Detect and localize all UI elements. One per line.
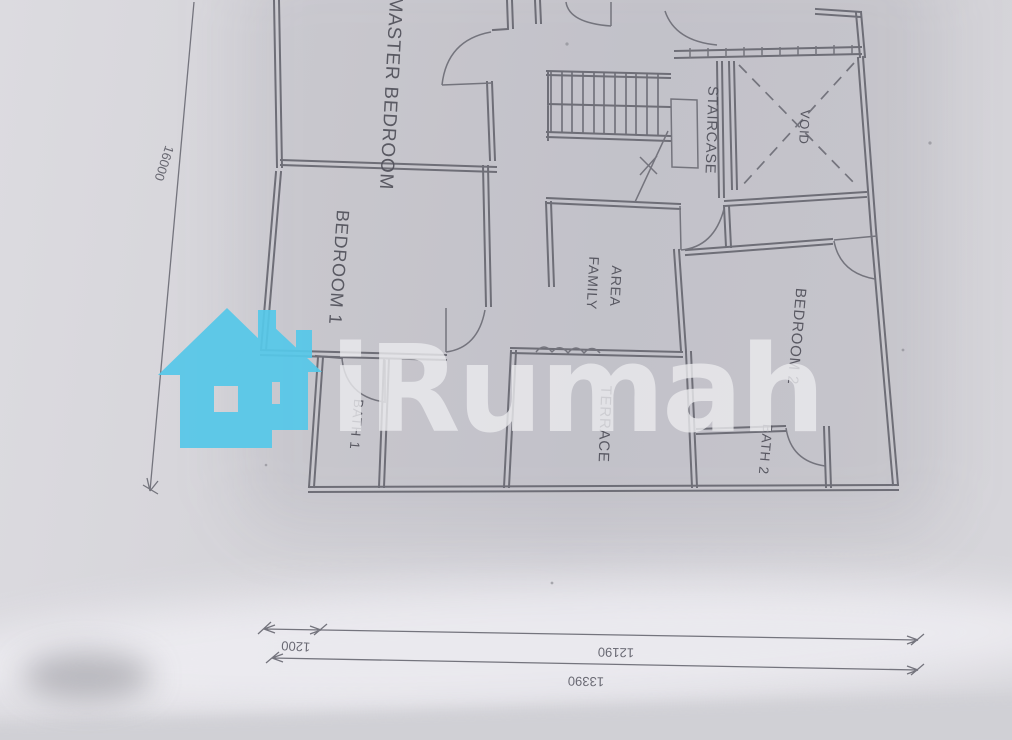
dimension-label-1200: 1200 [281,638,311,654]
floor-plan-photo: MASTER BEDROOM BEDROOM 1 STAIRCASE VOID … [0,0,1012,740]
dimension-label-12190: 12190 [598,645,634,661]
room-label-family-area-line2: AREA [607,265,625,307]
watermark-logo: iRumah [158,308,822,460]
room-label-void: VOID [796,109,813,145]
dimension-line-13390 [266,652,924,675]
room-label-master-bedroom: MASTER BEDROOM [375,0,406,191]
logo-house2-body [238,372,308,430]
room-label-family-area-line1: FAMILY [584,256,603,310]
room-label-staircase: STAIRCASE [701,86,720,175]
logo-houses-icon [158,308,322,448]
dimension-label-16000: 16000 [152,144,177,183]
floor-plan-drawing: MASTER BEDROOM BEDROOM 1 STAIRCASE VOID … [0,0,1012,740]
staircase-treads [547,71,698,202]
room-label-bedroom-1: BEDROOM 1 [325,209,353,325]
dimension-label-13390: 13390 [568,674,604,690]
dust-specks [265,42,932,584]
logo-brand-text: iRumah [330,321,822,460]
dimension-line-12190 [258,622,924,645]
